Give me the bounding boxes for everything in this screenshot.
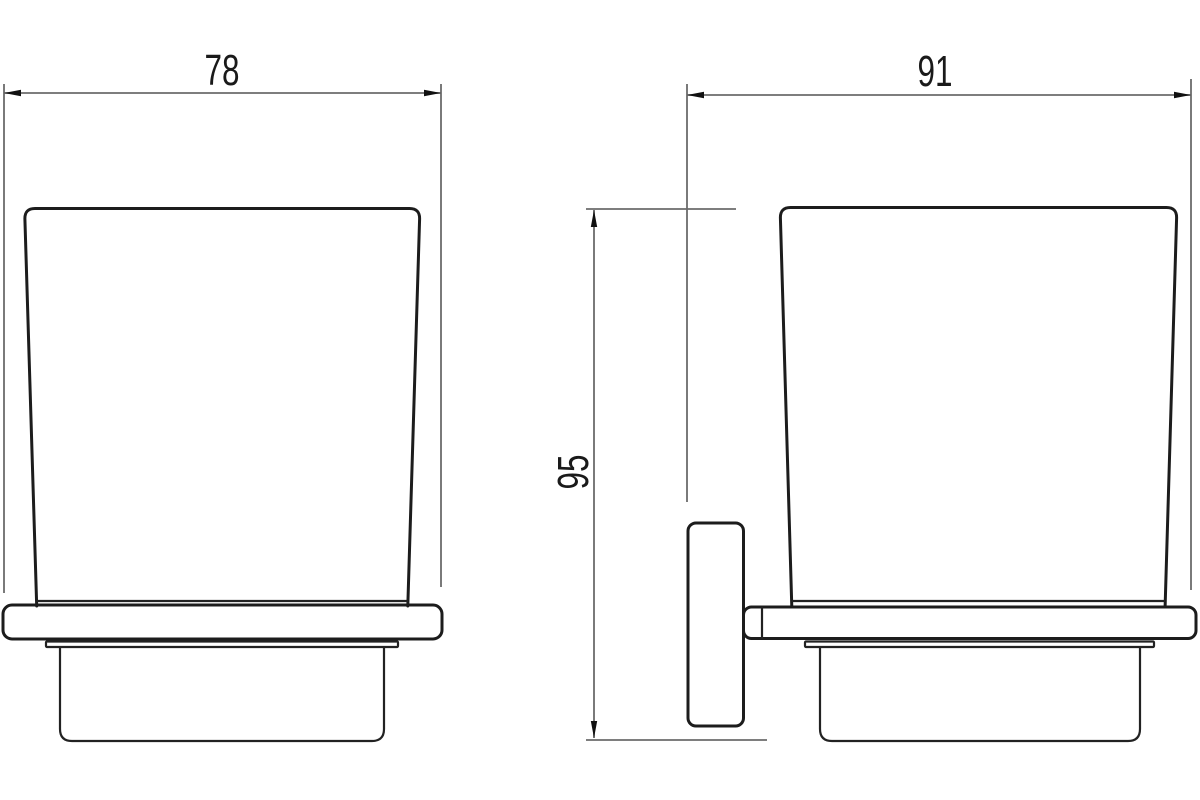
glass-lower-body xyxy=(820,648,1140,741)
arrow-down-icon xyxy=(591,721,597,738)
drawing-page: 78 91 xyxy=(0,0,1200,800)
technical-drawing-canvas: 78 91 xyxy=(0,0,1200,800)
glass-lip xyxy=(805,642,1154,648)
front-width-label: 78 xyxy=(205,46,240,95)
side-height-label: 95 xyxy=(549,455,598,490)
glass-lip xyxy=(46,642,398,648)
side-height-dimension: 95 xyxy=(549,209,767,740)
front-holder-plate xyxy=(3,605,442,639)
front-view: 78 xyxy=(3,46,442,741)
arrow-up-icon xyxy=(591,210,597,227)
side-view: 91 95 xyxy=(549,47,1196,741)
holder-arm-body xyxy=(744,607,1197,639)
arrow-right-icon xyxy=(1174,92,1191,98)
side-holder-arm xyxy=(744,607,1197,639)
glass-lower-body xyxy=(60,648,384,741)
arrow-right-icon xyxy=(424,90,441,96)
side-glass-lower xyxy=(805,642,1154,742)
wall-mount-plate xyxy=(688,523,744,726)
front-glass-tumbler xyxy=(25,209,420,607)
side-glass-tumbler xyxy=(780,208,1176,608)
front-glass-lower xyxy=(46,642,398,742)
side-depth-dimension: 91 xyxy=(687,47,1191,590)
arrow-left-icon xyxy=(687,92,704,98)
front-width-dimension: 78 xyxy=(4,46,441,593)
arrow-left-icon xyxy=(4,90,21,96)
tumbler-outline xyxy=(780,208,1176,608)
tumbler-outline xyxy=(25,209,420,607)
side-depth-label: 91 xyxy=(918,47,953,96)
